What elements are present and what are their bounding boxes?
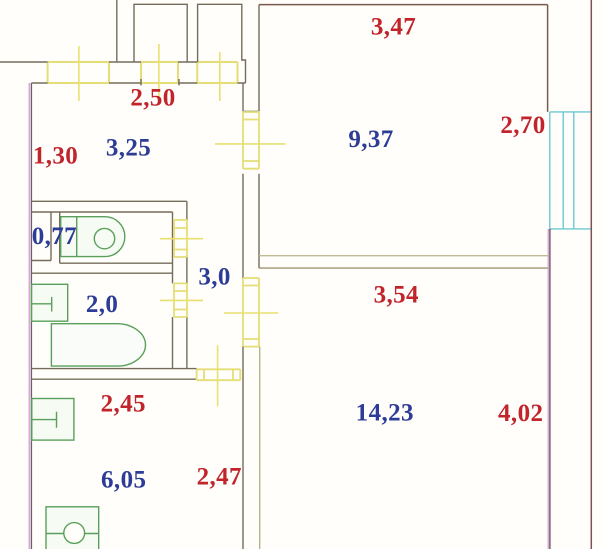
svg-text:3,47: 3,47 [371,14,416,41]
svg-text:4,02: 4,02 [498,400,543,427]
svg-text:2,0: 2,0 [86,291,118,318]
svg-text:3,54: 3,54 [374,282,419,309]
svg-text:6,05: 6,05 [101,466,146,493]
svg-text:3,0: 3,0 [198,263,230,290]
svg-text:2,50: 2,50 [130,85,175,112]
svg-text:2,45: 2,45 [101,391,146,418]
svg-text:9,37: 9,37 [348,126,393,153]
svg-text:3,25: 3,25 [106,135,151,162]
svg-text:2,47: 2,47 [197,464,242,491]
svg-text:0,77: 0,77 [32,223,77,250]
svg-text:1,30: 1,30 [33,143,78,170]
svg-text:14,23: 14,23 [356,400,414,427]
svg-text:2,70: 2,70 [500,112,545,139]
